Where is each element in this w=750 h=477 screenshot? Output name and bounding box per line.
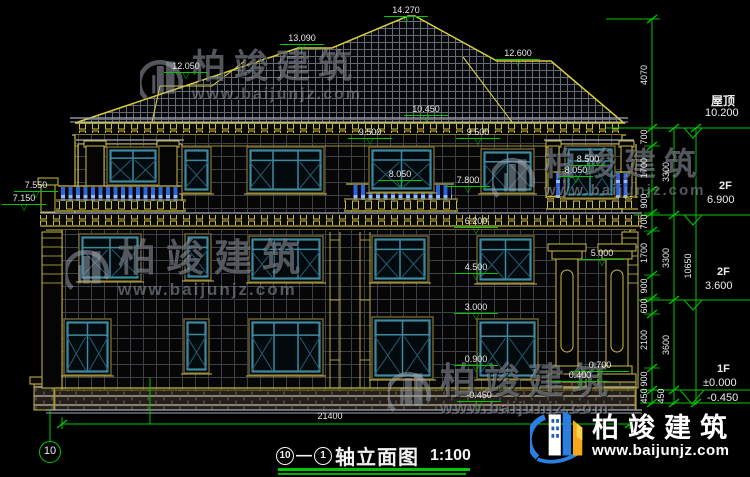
drawing-title: 轴立面图 [335, 441, 419, 470]
elevation-triangle-icon: ▽ [2, 203, 46, 212]
axis-bubble-start: 10 [276, 447, 294, 465]
brand-footer: 柏竣建筑 www.baijunjz.com [530, 403, 736, 470]
elevation-mark: 3.000▽ [454, 303, 498, 321]
elevation-mark: 4.500▽ [454, 263, 498, 281]
elevation-mark: 9.500▽ [348, 128, 392, 146]
elevation-mark: 9.500▽ [456, 128, 500, 146]
elevation-mark: 0.400▽ [551, 371, 609, 389]
elevation-triangle-icon: ▽ [384, 15, 428, 24]
elevation-triangle-icon: ▽ [378, 179, 422, 188]
level-name: 1F [717, 363, 730, 375]
dimension-label: 3300 [661, 162, 671, 182]
title-dash: — [296, 447, 312, 465]
brand-url: www.baijunjz.com [592, 442, 736, 459]
title-underline [278, 468, 470, 471]
brand-name: 柏竣建筑 [592, 414, 736, 442]
dimension-label: 700 [639, 214, 649, 229]
level-value: 3.600 [705, 280, 733, 292]
elevation-mark: 6.200▽ [454, 217, 498, 235]
elevation-mark: 13.090▽ [280, 34, 324, 52]
elevation-mark: 12.600▽ [496, 49, 540, 67]
elevation-triangle-icon: ▽ [348, 137, 392, 146]
baijun-logo [530, 403, 586, 470]
axis-bubble-end: 1 [314, 447, 332, 465]
elevation-triangle-icon: ▽ [280, 43, 324, 52]
elevation-mark: 8.050▽ [378, 170, 422, 188]
drawing-scale: 1:100 [430, 447, 471, 465]
dimension-label: 450 [639, 388, 649, 403]
elevation-triangle-icon: ▽ [454, 272, 498, 281]
elevation-mark: 0.900▽ [454, 355, 498, 373]
elevation-mark: -0.450▽ [457, 391, 501, 409]
level-value: ±0.000 [703, 377, 737, 389]
dimension-label: 1700 [639, 158, 649, 178]
title-underline [278, 473, 466, 475]
elevation-mark: 12.050▽ [164, 62, 208, 80]
elevation-mark: 14.270▽ [384, 6, 428, 24]
level-name: 2F [719, 180, 732, 192]
elevation-mark: 5.000▽ [580, 249, 624, 267]
elevation-mark: 7.800▽ [446, 176, 490, 194]
dimension-label: 450 [656, 388, 666, 403]
grid-axis-bubble: 10 [39, 441, 61, 463]
elevation-triangle-icon: ▽ [580, 258, 624, 267]
elevation-triangle-icon: ▽ [446, 185, 490, 194]
dimension-label: 900 [639, 371, 649, 386]
elevation-triangle-icon: ▽ [404, 114, 448, 123]
elevation-triangle-icon: ▽ [454, 364, 498, 373]
dimension-label: 3300 [661, 248, 671, 268]
cad-canvas: 14.270▽13.090▽12.050▽12.600▽10.450▽9.500… [0, 0, 750, 477]
elevation-triangle-icon: ▽ [454, 226, 498, 235]
elevation-triangle-icon: ▽ [456, 137, 500, 146]
dimension-label: 600 [639, 298, 649, 313]
dimension-label: 4070 [639, 65, 649, 85]
dimension-label: 1700 [639, 243, 649, 263]
elevation-triangle-icon: ▽ [496, 58, 540, 67]
elevation-mark: 7.150▽ [2, 194, 46, 212]
dimension-label: 900 [639, 278, 649, 293]
elevation-triangle-icon: ▽ [551, 380, 609, 389]
level-value: 10.200 [705, 107, 739, 119]
title-block: 10 — 1 轴立面图 1:100 [276, 441, 471, 470]
elevation-triangle-icon: ▽ [454, 312, 498, 321]
elevation-triangle-icon: ▽ [164, 71, 208, 80]
dimension-label: 3600 [661, 335, 671, 355]
dimension-label: 900 [639, 193, 649, 208]
dimension-label: 21400 [317, 411, 342, 421]
elevation-triangle-icon: ▽ [457, 400, 501, 409]
elevation-triangle-icon: ▽ [559, 175, 593, 184]
elevation-mark: 10.450▽ [404, 105, 448, 123]
dimension-label: 700 [639, 129, 649, 144]
dimension-label: 2100 [639, 330, 649, 350]
elevation-mark: 8.050▽ [559, 166, 593, 184]
level-value: 6.900 [707, 194, 735, 206]
dimension-label: 10650 [683, 253, 693, 278]
level-name: 2F [717, 266, 730, 278]
